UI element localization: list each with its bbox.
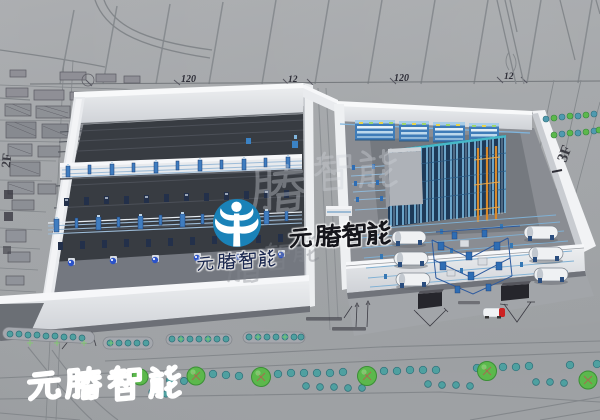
svg-text:12: 12	[288, 75, 298, 85]
svg-text:2F: 2F	[0, 153, 14, 169]
svg-text:12: 12	[504, 72, 514, 82]
svg-text:120: 120	[181, 74, 196, 85]
svg-text:120: 120	[394, 73, 409, 84]
